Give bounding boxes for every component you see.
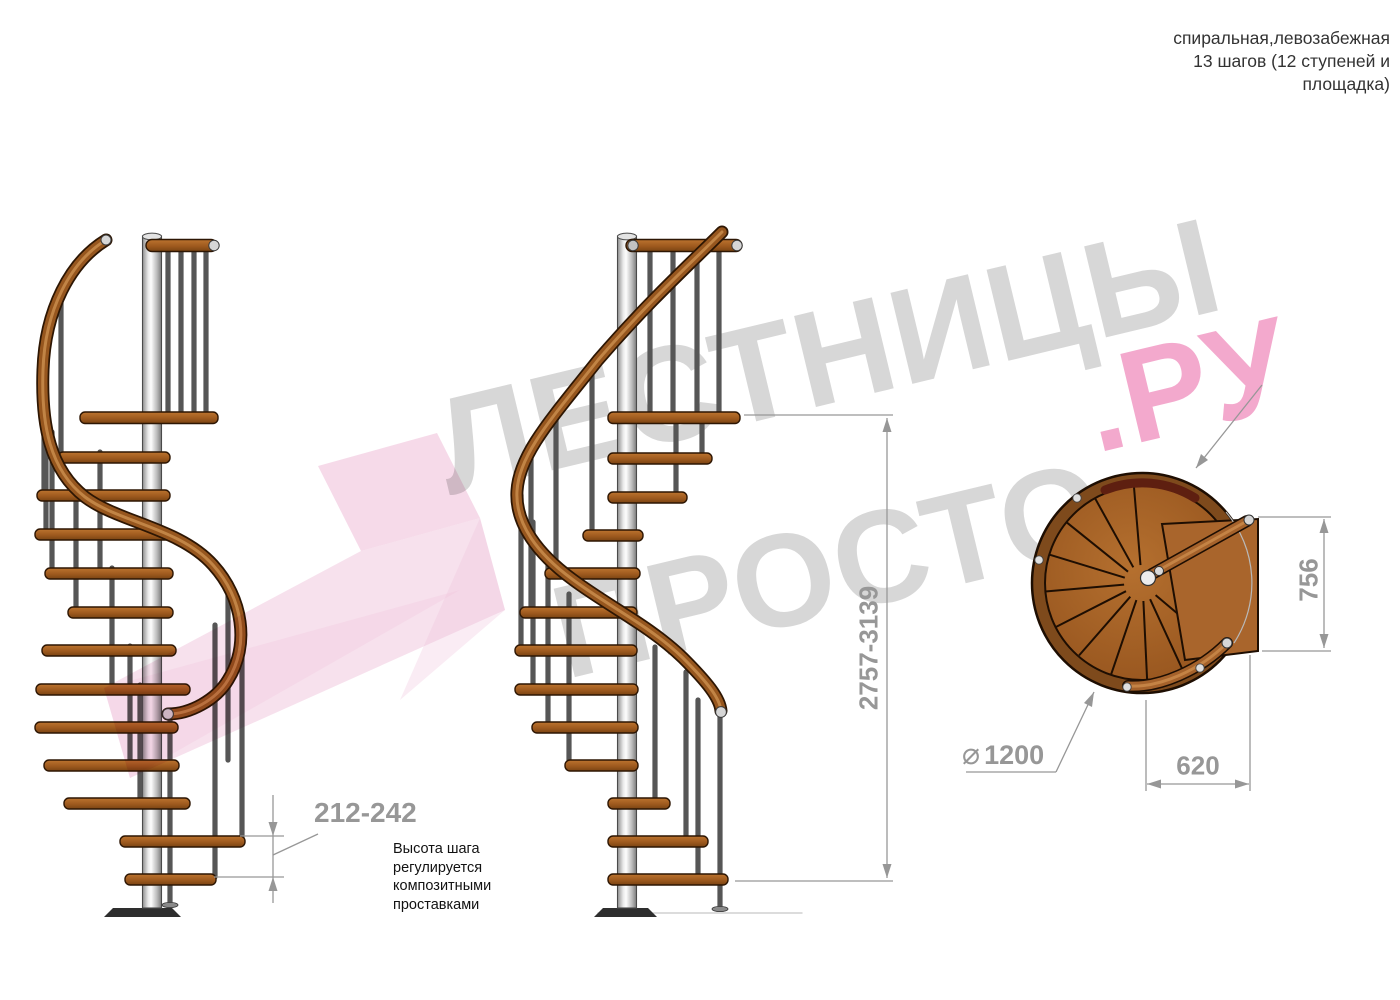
drawing-title: спиральная,левозабежная 13 шагов (12 сту… (1173, 27, 1390, 96)
title-line-2: 13 шагов (12 ступеней и (1173, 50, 1390, 73)
step-height-annotation: Высота шага регулируется композитными пр… (393, 840, 491, 914)
diameter-symbol-icon: ⌀ (962, 738, 980, 771)
dimension-lines (0, 0, 1400, 1000)
dimension-diameter: ⌀1200 (962, 737, 1044, 772)
dimension-step-height: 212-242 (314, 797, 417, 829)
dimension-landing-depth: 756 (1294, 558, 1325, 601)
diameter-value: 1200 (984, 740, 1044, 770)
title-line-1: спиральная,левозабежная (1173, 27, 1390, 50)
drawing-sheet: ЛЕСТНИЦЫ ПРОСТО (0, 0, 1400, 1000)
dimension-total-height: 2757-3139 (854, 586, 885, 710)
dimension-landing-width: 620 (1176, 751, 1219, 782)
title-line-3: площадка) (1173, 73, 1390, 96)
